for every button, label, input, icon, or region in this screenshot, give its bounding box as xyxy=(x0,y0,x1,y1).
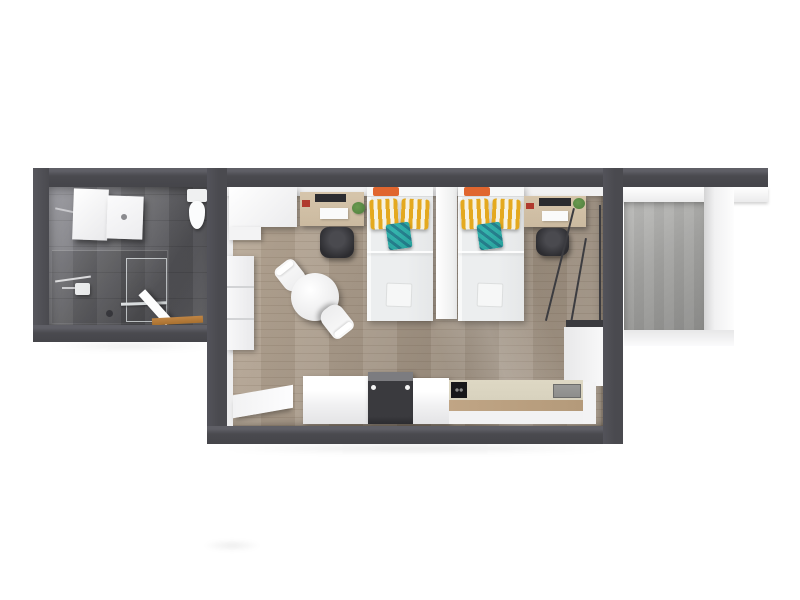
plan-drop-shadow xyxy=(45,342,213,350)
vanity-cabinet xyxy=(72,188,109,240)
desk-plant-2 xyxy=(573,198,585,209)
balcony-floor xyxy=(624,202,704,332)
bathroom-divider-wall xyxy=(207,168,227,444)
orange-cushion xyxy=(464,187,490,196)
counter-front-wood xyxy=(449,400,583,411)
desk-plant-1 xyxy=(352,202,365,214)
toilet xyxy=(187,189,207,230)
laptop-2 xyxy=(539,198,571,206)
basin-drain xyxy=(121,214,127,220)
kitchen-end-panel xyxy=(583,382,596,424)
exterior-wall-top xyxy=(33,168,768,187)
bed-divider-panel xyxy=(436,186,457,319)
desk-accessory-red-2 xyxy=(526,203,534,209)
teal-throw-cushion xyxy=(476,221,503,250)
duvet-fold xyxy=(367,251,433,253)
plan-drop-shadow xyxy=(203,540,261,551)
duvet-fold xyxy=(458,251,524,253)
orange-cushion xyxy=(373,187,399,196)
foot-cushion xyxy=(386,283,413,308)
kitchen-counter xyxy=(449,380,583,424)
laptop-1 xyxy=(315,194,346,202)
wardrobe-step xyxy=(229,227,261,240)
wall-shelf xyxy=(227,256,254,350)
exterior-wall-left xyxy=(33,168,49,342)
washbasin xyxy=(106,195,143,239)
toilet-bowl xyxy=(189,201,205,229)
counter-front-white xyxy=(449,411,583,424)
sliding-door-sill xyxy=(566,320,603,327)
interior-wall-face xyxy=(564,327,603,386)
exterior-wall-bottom xyxy=(207,426,623,444)
sliding-glass-door-frame xyxy=(599,205,601,325)
single-bed-1 xyxy=(367,185,433,321)
balcony-parapet-bottom xyxy=(624,330,734,346)
kitchen-cabinet-left xyxy=(303,376,368,424)
exterior-wall-right xyxy=(603,168,623,444)
single-bed-2 xyxy=(458,185,524,321)
teal-throw-cushion xyxy=(385,221,412,250)
wardrobe xyxy=(229,187,297,227)
oven xyxy=(368,372,413,424)
foot-cushion xyxy=(477,283,504,308)
desk-paper-1 xyxy=(320,208,348,219)
office-chair-1 xyxy=(320,227,354,258)
balcony-ledge xyxy=(623,187,768,202)
bathroom-wall-bottom xyxy=(33,325,227,342)
balcony-parapet-right xyxy=(704,187,734,346)
desk-accessory-red-1 xyxy=(302,200,310,207)
plan-drop-shadow xyxy=(215,444,615,453)
cooktop xyxy=(451,382,467,398)
desk-paper-2 xyxy=(542,211,568,221)
floorplan-render xyxy=(0,0,800,600)
kitchen-sink xyxy=(553,384,581,398)
kitchen-cabinet-right xyxy=(413,378,449,424)
